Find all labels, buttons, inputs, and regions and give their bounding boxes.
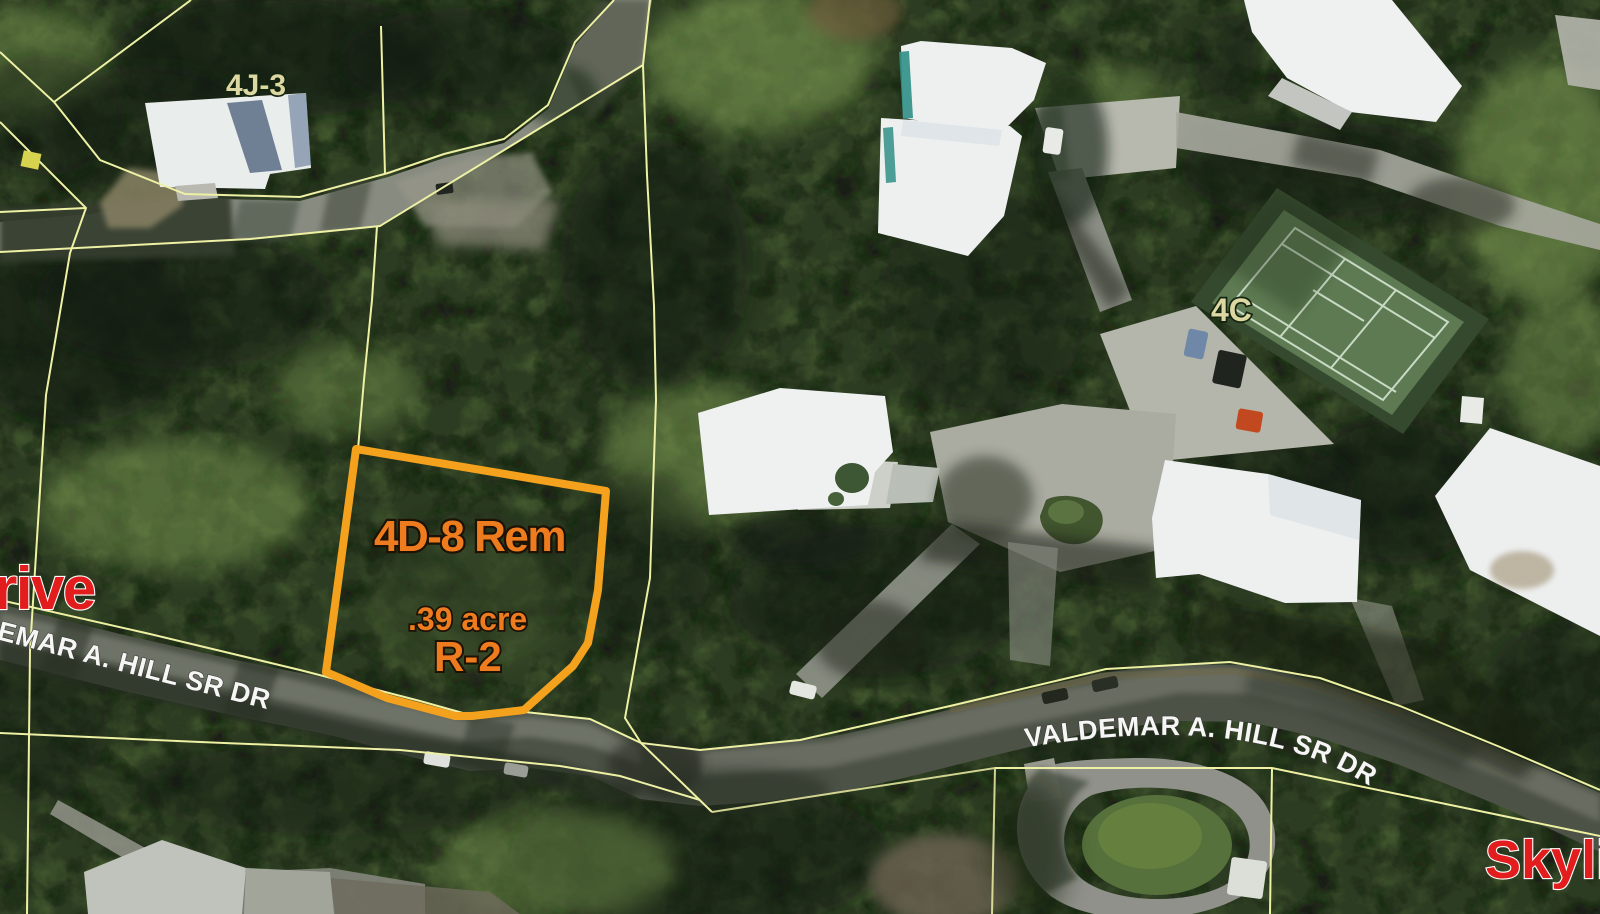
svg-text:.39 acre: .39 acre: [408, 601, 527, 637]
svg-text:4C: 4C: [1211, 292, 1252, 328]
svg-text:4J-3: 4J-3: [226, 69, 286, 102]
svg-text:rive: rive: [0, 555, 95, 622]
svg-text:4D-8 Rem: 4D-8 Rem: [374, 512, 565, 561]
svg-text:Skylin: Skylin: [1485, 830, 1600, 890]
svg-text:R-2: R-2: [434, 633, 502, 680]
